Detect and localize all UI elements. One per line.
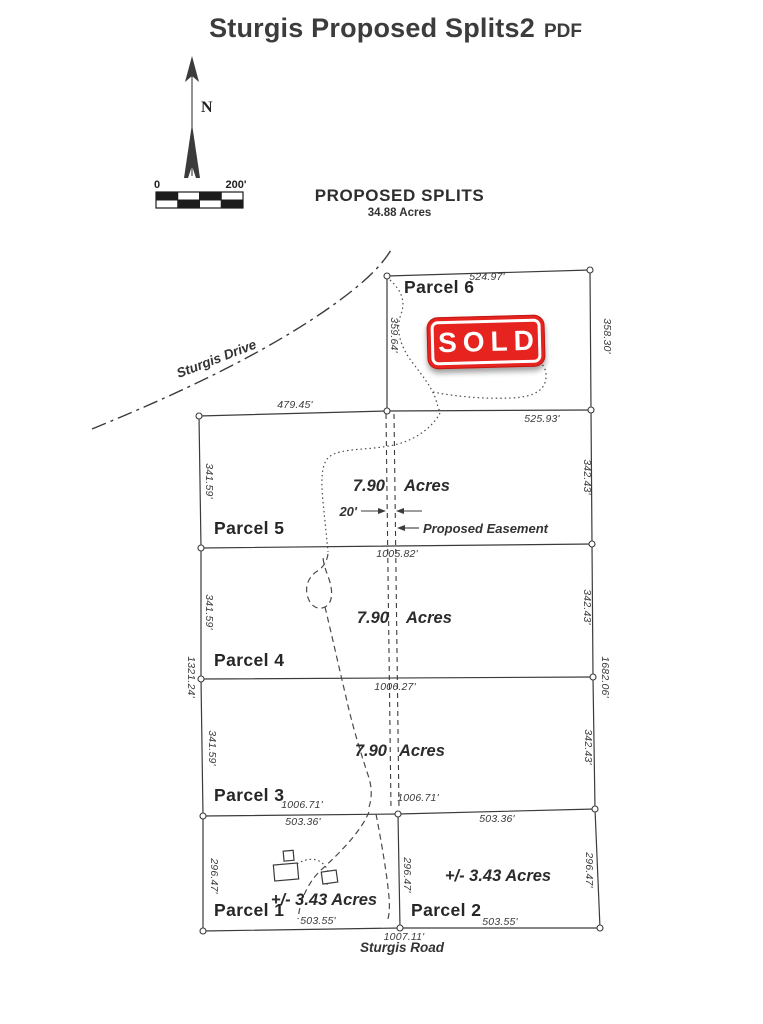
survey-corner-markers (196, 267, 603, 934)
parcel-boundaries (199, 270, 600, 931)
parcel3-name: Parcel 3 (214, 785, 284, 805)
parcel2-south-dim: 503.55' (482, 916, 518, 928)
parcel2-acres: +/- 3.43 Acres (445, 867, 551, 885)
parcel3-south-right-dim: 1006.71' (397, 792, 439, 804)
parcel1-north-dim: 503.36' (285, 816, 321, 828)
parcel4-acres-value: 7.90 (357, 609, 390, 627)
parcel4-west-dim: 341.59' (203, 594, 215, 630)
parcel1-buildings (272, 850, 338, 884)
parcel4-name: Parcel 4 (214, 650, 284, 670)
parcel6-south-dim: 525.93' (524, 413, 560, 425)
scale-start-label: 0 (154, 179, 160, 191)
parcel1-acres: +/- 3.43 Acres (271, 891, 377, 909)
parcel2-north-dim: 503.36' (479, 813, 515, 825)
sturgis-drive-road: Sturgis Drive (92, 250, 391, 429)
parcel2-name: Parcel 2 (411, 900, 481, 920)
parcel6-name: Parcel 6 (404, 277, 474, 297)
parcel1-south-dim: 503.55' (300, 915, 336, 927)
parcel5-south-dim: 1005.82' (376, 548, 418, 560)
parcel2-east-dim: 296.47' (583, 851, 595, 888)
parcel3-acres-value: 7.90 (355, 742, 388, 760)
parcel4-south-dim: 1006.27' (374, 681, 416, 693)
scale-bar: 0 200' (154, 179, 247, 208)
parcel5-east-dim: 342.43' (581, 459, 593, 495)
north-label: N (201, 99, 213, 116)
plat-map-svg: N 0 200' Sturgis Drive (0, 0, 763, 1024)
parcel5-north-dim: 479.45' (277, 399, 313, 411)
drainage-stream-paths (297, 280, 546, 922)
parcel5-acres-unit: Acres (403, 477, 450, 495)
plat-document-page: Sturgis Proposed Splits2PDF PROPOSED SPL… (0, 0, 763, 1024)
parcel3-acres-unit: Acres (398, 742, 445, 760)
parcel3-east-dim: 342.43' (582, 729, 594, 765)
parcel1-west-dim: 296.47' (208, 857, 220, 894)
easement-width-label: 20' (338, 504, 357, 519)
parcel3-west-dim: 341.59' (206, 730, 218, 766)
parcel5-name: Parcel 5 (214, 518, 284, 538)
parcel6-west-dim: 359.64' (388, 317, 400, 353)
parcel3-south-left-dim: 1006.71' (281, 799, 323, 811)
parcel6-east-dim: 358.30' (601, 318, 613, 354)
proposed-easement-label: Proposed Easement (423, 521, 549, 536)
sold-stamp-label: SOLD (432, 325, 541, 360)
parcel2-west-dim: 296.47' (401, 856, 413, 893)
parcel4-acres-unit: Acres (405, 609, 452, 627)
parcel5-acres-value: 7.90 (353, 477, 386, 495)
parcel6-north-dim: 524.97' (469, 271, 505, 283)
scale-end-label: 200' (226, 179, 247, 191)
easement-callout: 20' Proposed Easement (338, 504, 548, 536)
sturgis-road-label: Sturgis Road (360, 940, 445, 955)
overall-east-dim: 1682.06' (599, 656, 611, 698)
parcel5-west-dim: 341.59' (203, 463, 215, 499)
parcel4-east-dim: 342.43' (581, 589, 593, 625)
overall-west-dim: 1321.24' (185, 656, 197, 698)
sold-stamp: SOLD (426, 314, 545, 369)
north-arrow-icon: N (184, 56, 213, 178)
